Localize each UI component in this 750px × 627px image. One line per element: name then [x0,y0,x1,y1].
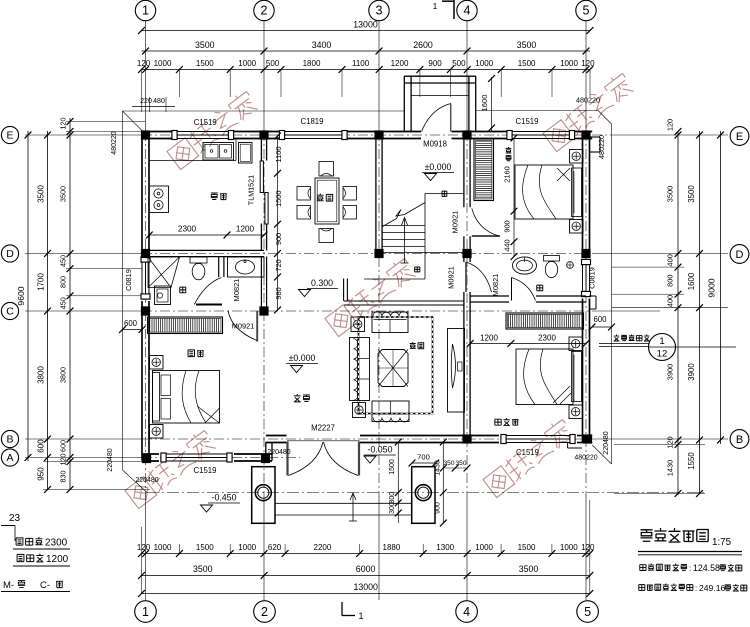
svg-text:1500: 1500 [518,543,536,552]
svg-text:3500: 3500 [59,186,68,202]
svg-text:220: 220 [140,98,152,105]
svg-text:-0.450: -0.450 [212,493,237,503]
svg-text:3400: 3400 [312,40,332,50]
svg-text:13000: 13000 [353,20,378,30]
svg-text:3900: 3900 [666,364,675,380]
svg-text:1000: 1000 [475,543,493,552]
svg-text:2200: 2200 [314,543,332,552]
svg-text:120: 120 [581,543,595,552]
svg-text:D: D [6,248,14,260]
svg-text:120: 120 [581,59,595,68]
svg-text:M0921: M0921 [232,322,255,331]
svg-text:B: B [6,434,13,446]
svg-text:1600: 1600 [480,95,489,112]
svg-text:720: 720 [274,259,283,271]
svg-text:2300: 2300 [178,225,197,234]
svg-text:3900: 3900 [687,363,696,381]
svg-text:3: 3 [376,4,383,18]
svg-text:M0921: M0921 [447,266,456,289]
svg-text:600: 600 [59,440,68,452]
svg-text:1500: 1500 [389,459,396,475]
svg-text:1100: 1100 [274,147,283,163]
svg-text:1000: 1000 [475,59,493,68]
svg-text:1: 1 [358,611,363,621]
svg-text:1800: 1800 [303,59,321,68]
svg-text:1000: 1000 [560,543,578,552]
svg-text:C-: C- [40,580,50,591]
svg-text:450: 450 [59,255,68,267]
svg-text:5: 5 [583,4,590,18]
svg-text:2300: 2300 [538,334,556,343]
svg-text:2: 2 [261,4,268,18]
svg-text:C1519: C1519 [194,118,217,127]
svg-text:300: 300 [389,502,396,514]
svg-text:13000: 13000 [353,582,378,592]
svg-text:E: E [736,131,743,143]
svg-text:440: 440 [503,239,512,251]
svg-text:M0921: M0921 [451,211,460,234]
svg-text:M0821: M0821 [232,279,241,302]
svg-text:120: 120 [137,543,151,552]
svg-text:350: 350 [455,460,466,467]
svg-text:900: 900 [428,59,442,68]
svg-text:400: 400 [666,295,675,307]
svg-text:1: 1 [659,336,664,347]
svg-text:620: 620 [268,543,282,552]
svg-text:400: 400 [666,254,675,266]
svg-text:M2227: M2227 [311,424,335,433]
svg-text:220480: 220480 [107,448,114,471]
svg-text:E: E [6,130,13,142]
svg-text:C0819: C0819 [124,269,133,291]
svg-text:1430: 1430 [666,460,675,476]
svg-text:2160: 2160 [503,166,512,182]
svg-text:980: 980 [274,287,283,299]
svg-text:0.300: 0.300 [311,278,333,288]
svg-text:1880: 1880 [383,543,401,552]
svg-text:±0.000: ±0.000 [425,162,452,172]
svg-text:1500: 1500 [274,190,283,206]
svg-text:600: 600 [593,315,607,324]
svg-text:900: 900 [503,220,512,232]
svg-text:3500: 3500 [687,185,696,203]
svg-text:120: 120 [59,454,68,466]
svg-text:3500: 3500 [519,564,539,574]
svg-text:1500: 1500 [196,59,214,68]
svg-text:3500: 3500 [193,564,213,574]
svg-text:5: 5 [584,605,591,619]
svg-text:120: 120 [59,118,68,130]
svg-text:249.16: 249.16 [699,583,726,593]
svg-text:1: 1 [433,1,438,11]
svg-text:TLM1521: TLM1521 [247,175,256,205]
svg-text:1700: 1700 [37,273,46,291]
svg-text:3500: 3500 [37,185,46,203]
svg-text:480220: 480220 [111,131,118,154]
svg-text:600: 600 [37,439,46,453]
svg-text:1200: 1200 [46,554,69,565]
svg-text:450: 450 [59,297,68,309]
svg-text:800: 800 [666,275,675,287]
svg-text:C1519: C1519 [194,466,217,475]
svg-text:12: 12 [657,349,668,360]
svg-text::: : [689,563,691,573]
svg-text:M0821: M0821 [491,274,500,297]
svg-text:220480: 220480 [267,449,290,456]
svg-text:2600: 2600 [413,40,433,50]
svg-text:1: 1 [142,605,149,619]
svg-text:3500: 3500 [666,186,675,202]
svg-text:C1519: C1519 [516,117,539,126]
svg-text:A: A [6,452,13,464]
svg-text:M0918: M0918 [423,140,447,149]
svg-text:500: 500 [452,59,466,68]
svg-text:120: 120 [137,59,151,68]
svg-text:C1819: C1819 [301,117,324,126]
svg-text:1100: 1100 [352,59,370,68]
svg-text:220480: 220480 [603,431,610,454]
svg-text:1550: 1550 [687,452,696,470]
svg-text:120: 120 [666,119,675,131]
svg-text:3500: 3500 [517,40,537,50]
svg-text:300: 300 [389,492,396,504]
svg-text:1200: 1200 [236,225,255,234]
svg-text:1300: 1300 [436,543,454,552]
svg-text:3500: 3500 [195,40,215,50]
svg-text:1000: 1000 [154,59,172,68]
svg-text:2: 2 [261,605,268,619]
svg-text:124.58: 124.58 [693,563,720,573]
svg-text:900: 900 [274,233,283,245]
svg-text:4: 4 [464,4,471,18]
svg-text:C: C [6,306,14,318]
svg-text:3800: 3800 [59,367,68,383]
svg-text:-0.050: -0.050 [368,445,393,455]
svg-text:3800: 3800 [37,366,46,384]
svg-text:1200: 1200 [480,334,498,343]
svg-text:1000: 1000 [238,59,256,68]
svg-text:700: 700 [417,453,430,462]
svg-text::: : [695,583,697,593]
svg-text:9600: 9600 [16,286,26,305]
svg-text:C0819: C0819 [588,267,597,289]
svg-text:120: 120 [666,436,675,448]
svg-text:D: D [736,249,744,261]
svg-text:±0.000: ±0.000 [289,353,316,363]
svg-text:4: 4 [463,605,470,619]
svg-text:1500: 1500 [196,543,214,552]
svg-text:220480: 220480 [135,477,158,484]
svg-text:900: 900 [435,502,442,514]
svg-text:1000: 1000 [238,543,256,552]
svg-text:800: 800 [59,276,68,288]
svg-text:830: 830 [59,471,68,483]
svg-text:480220: 480220 [576,96,600,105]
svg-text:1000: 1000 [560,59,578,68]
svg-text:1500: 1500 [518,59,536,68]
svg-text:480220: 480220 [597,135,606,159]
svg-text:9000: 9000 [707,278,717,297]
svg-text:600: 600 [124,319,138,328]
svg-text:1: 1 [142,4,149,18]
svg-text:M-: M- [3,580,14,591]
svg-text:23: 23 [9,513,21,524]
svg-text:2300: 2300 [45,538,68,549]
svg-text:6000: 6000 [356,564,376,574]
svg-text:500: 500 [266,59,280,68]
svg-text:1600: 1600 [687,272,696,290]
svg-text:C1519: C1519 [516,448,539,457]
svg-text:B: B [736,434,743,446]
svg-text:1000: 1000 [154,543,172,552]
svg-text:480: 480 [153,98,165,105]
svg-text:1200: 1200 [391,59,409,68]
svg-text:1:75: 1:75 [712,537,732,548]
svg-text:950: 950 [37,467,46,481]
svg-text:480220: 480220 [574,455,597,462]
svg-text:350: 350 [443,460,454,467]
